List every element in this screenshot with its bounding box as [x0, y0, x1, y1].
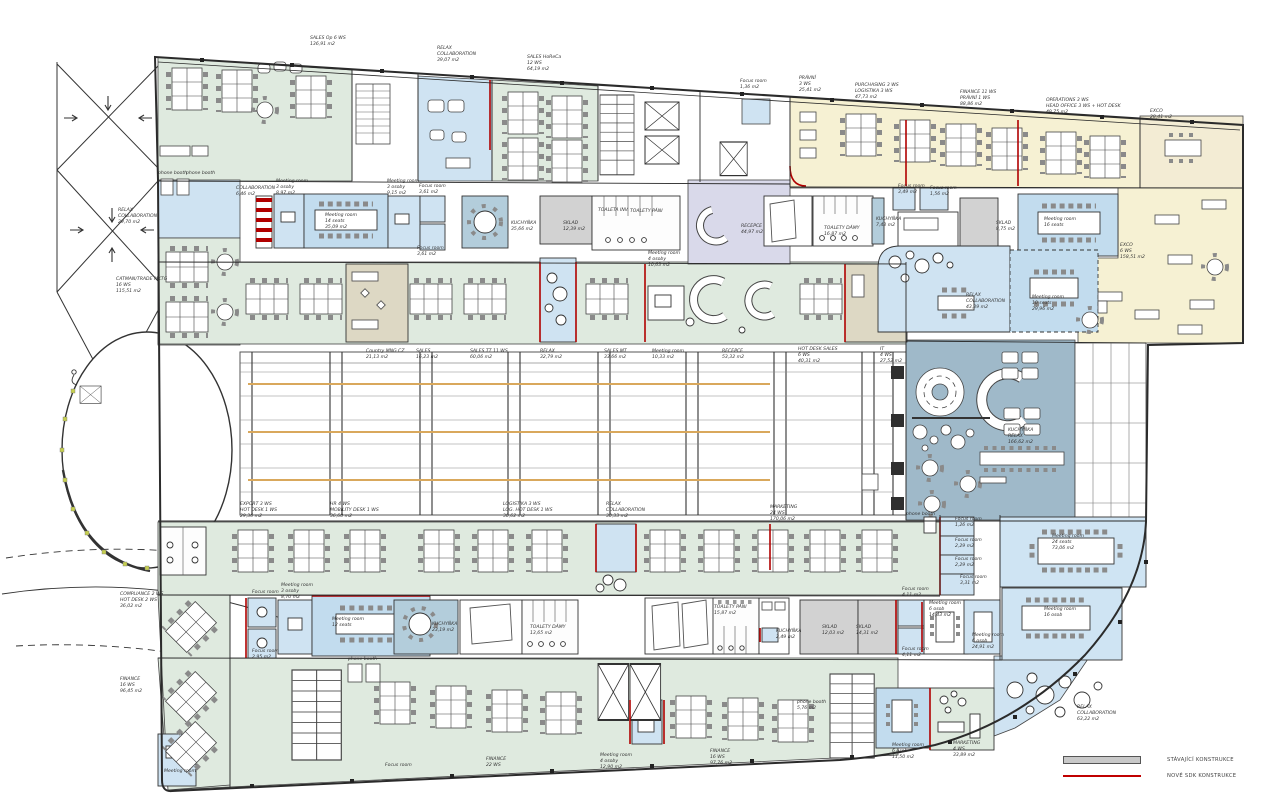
- storage-top-right: [960, 198, 998, 246]
- room-label: Meeting room: [164, 769, 196, 775]
- room-label: phone booth 5,76 m2: [797, 700, 826, 712]
- room-label: Focus room 3,61 m2: [419, 184, 446, 196]
- room-label: TOALETY PÁNI: [630, 209, 663, 215]
- room-label: Meeting room 4 osoby 12,90 m2: [600, 753, 632, 771]
- room-label: RELAX COLLABORATION 29,70 m2: [118, 208, 157, 226]
- room-label: phone booth: [158, 171, 187, 177]
- room-label: RELAX COLLABORATION 39,07 m2: [437, 46, 476, 64]
- room-label: Meeting room 6 osob 11,50 m2: [892, 743, 924, 761]
- room-label: RECEPCE 44,97 m2: [741, 224, 763, 236]
- room-label: TOALETY DÁMY 13,65 m2: [530, 625, 566, 637]
- room-label: Focus room 1,56 m2: [930, 186, 957, 198]
- room-label: RELAX COLLABORATION 30,33 m2: [606, 502, 645, 520]
- room-label: TOALETY DÁMY 16,87 m2: [824, 226, 860, 238]
- room-label: Focus room 4,11 m2: [902, 587, 929, 599]
- room-label: SALES Op 6 WS 136,91 m2: [310, 36, 346, 48]
- room-label: RECEPCE 53,32 m2: [722, 349, 744, 361]
- room-label: Meeting room 14 seats 35,09 m2: [325, 213, 357, 231]
- room-label: FINANCE 16 WS 96,45 m2: [120, 677, 142, 695]
- room-label: Focus room: [385, 763, 412, 769]
- room-label: Country MNG CZ 21,13 m2: [366, 349, 404, 361]
- room-label: SALES 16,23 m2: [416, 349, 438, 361]
- room-label: Focus room 1,26 m2: [955, 517, 982, 529]
- room-label: HR 4 WS MOBILITY DESK 1 WS 36,60 m2: [330, 502, 379, 520]
- toilets-top: [592, 196, 680, 250]
- room-label: Meeting room 6 osob 14,43 m2: [929, 601, 961, 619]
- zone-glazing: [1075, 343, 1146, 522]
- legend-swatch-existing: [1063, 756, 1141, 764]
- room-label: Meeting room 4 osoby 10,63 m2: [648, 251, 680, 269]
- room-label: KUCHYŇKA 35,66 m2: [511, 221, 536, 233]
- room-label: LOGISTIKA 3 WS LOG. HOT DESK 1 WS 30,62 …: [503, 502, 553, 520]
- room-label: HOT DESK SALES 6 WS 40,31 m2: [798, 347, 838, 365]
- room-label: phone booth: [348, 657, 377, 663]
- room-label: COLLABORATION 6,46 m2: [236, 186, 275, 198]
- room-label: Focus room 1,36 m2: [740, 79, 767, 91]
- room-label: KUCHYŇKA 7,43 m2: [876, 217, 901, 229]
- room-label: Meeting room 24 seats 73,06 m2: [1052, 534, 1084, 552]
- room-label: phone booth: [186, 171, 215, 177]
- legend: STÁVAJÍCÍ KONSTRUKCE NOVÉ SDK KONSTRUKCE: [1063, 752, 1236, 784]
- room-label: FINANCE 22 WS: [486, 757, 506, 769]
- room-label: Meeting room 3 osoby 8,97 m2: [276, 179, 308, 197]
- room-label: SKLAD 8,75 m2: [996, 221, 1015, 233]
- room-label: EXCO 28,41 m2: [1150, 109, 1172, 121]
- room-label: Meeting room 16 osob: [1044, 607, 1076, 619]
- legend-swatch-new: [1063, 775, 1141, 777]
- legend-label: NOVÉ SDK KONSTRUKCE: [1167, 773, 1236, 779]
- central-grid: [240, 352, 906, 515]
- room-label: Meeting room 10,33 m2: [652, 349, 684, 361]
- legend-label: STÁVAJÍCÍ KONSTRUKCE: [1167, 757, 1234, 763]
- room-label: TOALETA INV.: [598, 208, 629, 214]
- room-label: Meeting room 12 seats: [332, 617, 364, 629]
- floor-plan: SALES Op 6 WS 136,91 m2 RELAX COLLABORAT…: [0, 0, 1287, 808]
- room-label: Meeting room 3 osoby 9,15 m2: [387, 179, 419, 197]
- room-label: KUCHYŇKA RELAX 166,62 m2: [1008, 428, 1033, 446]
- room-label: FINANCE 11 WS PRÁVNÍ 1 WS 88,86 m2: [960, 90, 996, 108]
- room-label: Focus room 3,61 m2: [417, 246, 444, 258]
- floor-plan-drawing: [0, 0, 1287, 808]
- room-label: SKLAD 12,39 m2: [563, 221, 585, 233]
- legend-item-existing: STÁVAJÍCÍ KONSTRUKCE: [1063, 752, 1236, 768]
- storage-top: [540, 196, 592, 244]
- room-label: Meeting room 16 seats: [1044, 217, 1076, 229]
- room-label: KUCHYŇKA 2,49 m2: [776, 629, 801, 641]
- room-label: Focus room 3,49 m2: [898, 184, 925, 196]
- room-label: phone booth: [906, 512, 935, 518]
- room-label: Focus room: [252, 590, 279, 596]
- room-label: OPERATIONS 3 WS HEAD OFFICE 3 WS + HOT D…: [1046, 98, 1121, 116]
- room-label: Focus room 4,11 m2: [902, 647, 929, 659]
- room-label: TOALETY PÁNI 15,87 m2: [714, 605, 747, 617]
- room-label: COMPLIANCE 2 WS HOT DESK 2 WS 36,02 m2: [120, 592, 163, 610]
- room-label: FINANCE 16 WS 97,76 m2: [710, 749, 732, 767]
- room-label: EXPORT 3 WS HOT DESK 1 WS 29,36 m2: [240, 502, 277, 520]
- room-label: Focus room 2,95 m2: [252, 649, 279, 661]
- room-label: EXCO 6 WS 158,51 m2: [1120, 243, 1145, 261]
- room-label: SALES HoReCa 12 WS 64,19 m2: [527, 55, 561, 73]
- room-label: MARKETING 24 WS 170,06 m2: [770, 505, 797, 523]
- wheelchair-icon: [72, 370, 76, 374]
- direction-arrows: [64, 96, 154, 262]
- room-label: PRÁVNÍ 3 WS 25,41 m2: [799, 76, 821, 94]
- room-label: Focus room 2,29 m2: [955, 557, 982, 569]
- room-label: IT 4 WS 27,52 m2: [880, 347, 902, 365]
- room-label: Meeting room 6 osob 24,91 m2: [972, 633, 1004, 651]
- room-label: SKLAD 12,03 m2: [822, 625, 844, 637]
- room-label: SALES MT 33,66 m2: [604, 349, 627, 361]
- room-label: RELAX 32,79 m2: [540, 349, 562, 361]
- room-label: SKLAD 14,31 m2: [856, 625, 878, 637]
- room-label: Focus room 3,31 m2: [960, 575, 987, 587]
- room-label: PURCHASING 3 WS LOGISTIKA 3 WS 47,73 m2: [855, 83, 899, 101]
- legend-item-new: NOVÉ SDK KONSTRUKCE: [1063, 768, 1236, 784]
- room-label: MARKETING 4 WS 33,89 m2: [953, 741, 980, 759]
- room-label: Meeting room 10 seats 29,96 m2: [1032, 295, 1064, 313]
- room-label: Focus room 2,29 m2: [955, 538, 982, 550]
- room-label: SALES TT 11 WS 60,06 m2: [470, 349, 508, 361]
- room-label: CATMAN/TRADE MKTG 16 WS 115,51 m2: [116, 277, 167, 295]
- room-label: RELAX COLLABORATION 63,22 m2: [1077, 705, 1116, 723]
- room-label: RELAX COLLABORATION 43,39 m2: [966, 293, 1005, 311]
- room-label: KUCHYŇKA 23,19 m2: [432, 622, 457, 634]
- room-label: Meeting room 3 osoby 8,70 m2: [281, 583, 313, 601]
